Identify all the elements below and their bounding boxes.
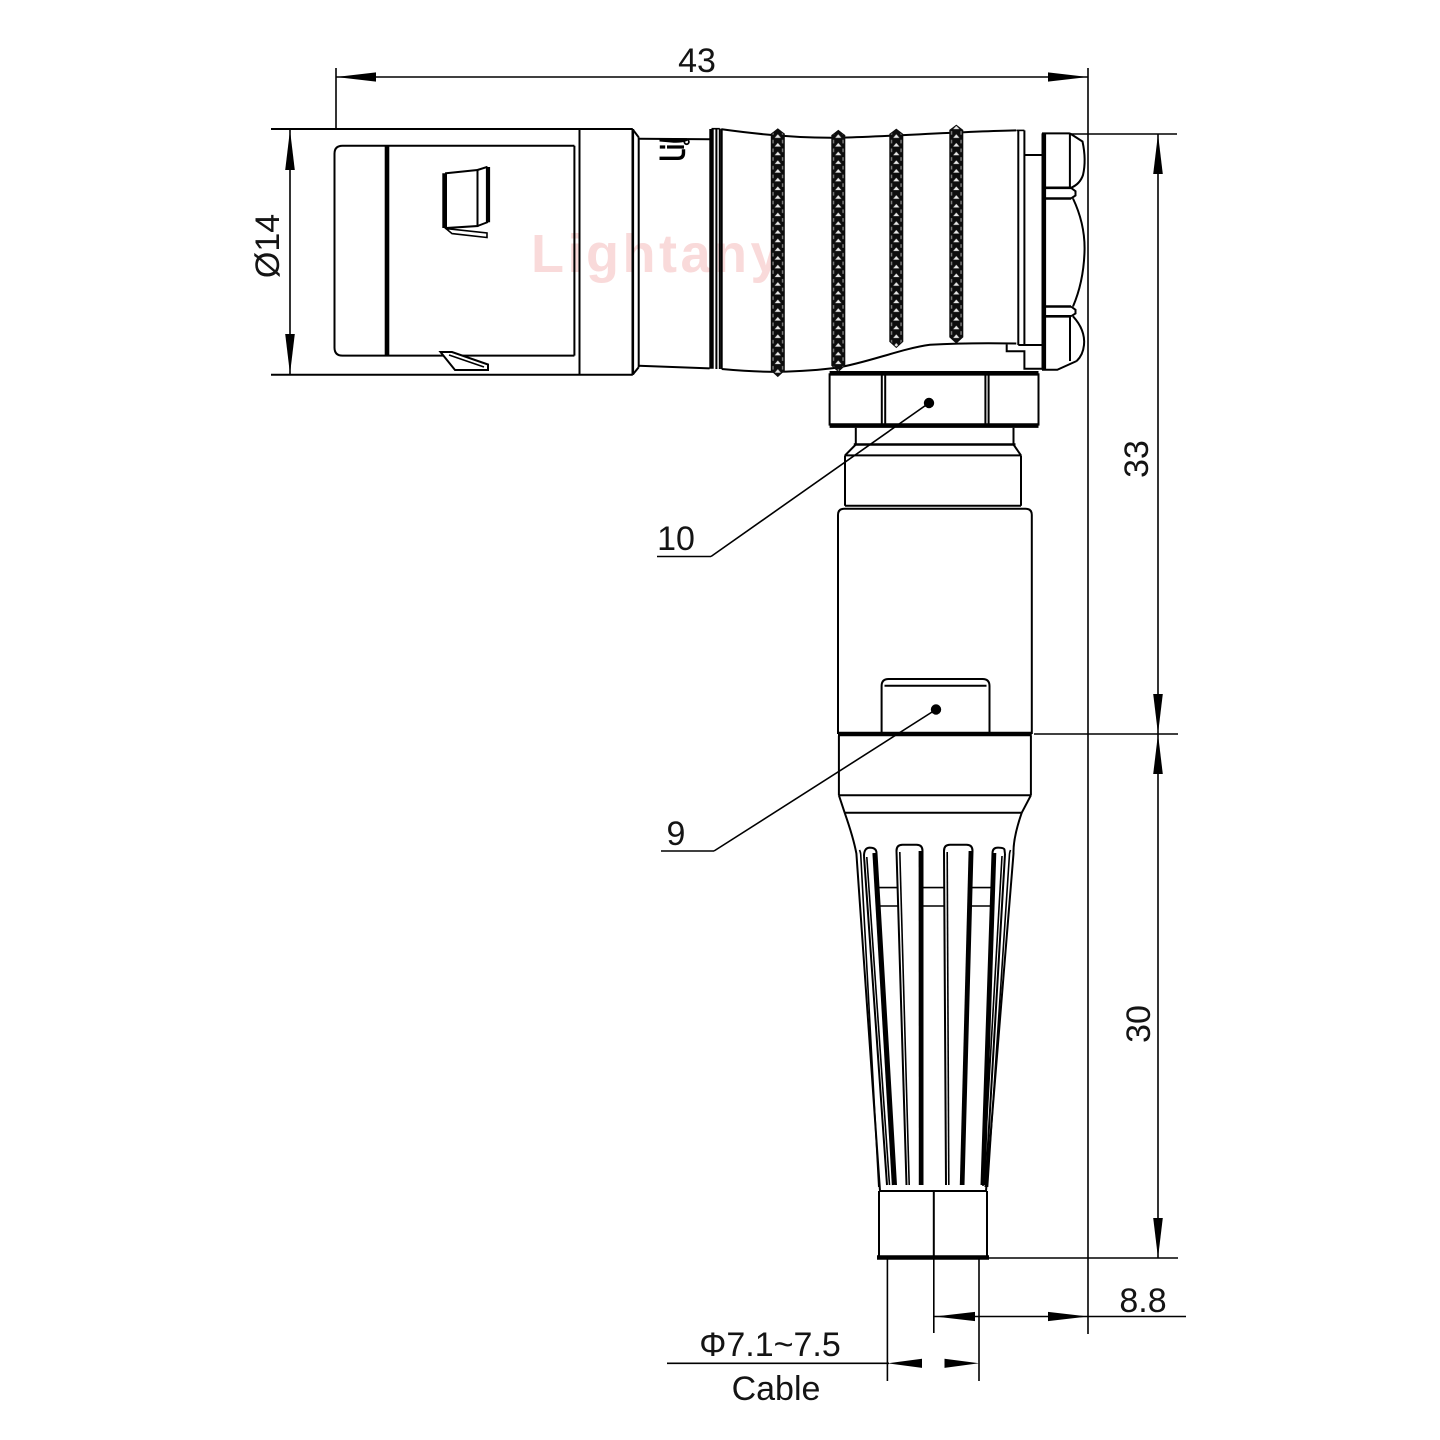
svg-text:43: 43 <box>678 42 716 80</box>
svg-text:Cable: Cable <box>732 1370 821 1408</box>
svg-text:30: 30 <box>1120 1005 1158 1043</box>
svg-text:Φ7.1~7.5: Φ7.1~7.5 <box>699 1326 841 1364</box>
svg-text:8.8: 8.8 <box>1119 1282 1166 1320</box>
svg-text:33: 33 <box>1118 440 1156 478</box>
svg-text:10: 10 <box>657 520 695 558</box>
svg-text:Ø14: Ø14 <box>249 214 287 278</box>
svg-text:9: 9 <box>667 815 686 853</box>
svg-text:Lightany: Lightany <box>531 224 784 284</box>
